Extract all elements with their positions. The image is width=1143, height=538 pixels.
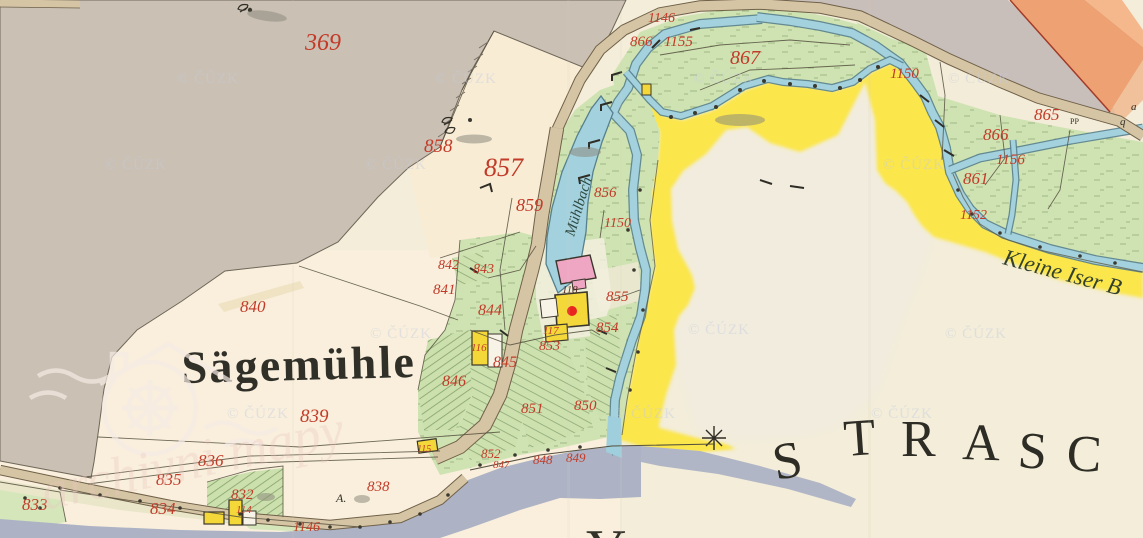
svg-text:q: q [1120,116,1126,128]
svg-text:843: 843 [473,262,494,277]
svg-text:867: 867 [730,47,761,69]
svg-text:834: 834 [150,499,176,518]
svg-text:© ČÚZK: © ČÚZK [883,156,945,173]
svg-text:118: 118 [562,284,578,296]
svg-text:847: 847 [493,459,510,471]
svg-text:C: C [1065,425,1103,484]
svg-text:846: 846 [442,373,466,390]
svg-text:1150: 1150 [604,216,631,231]
svg-text:a: a [1131,101,1137,113]
svg-text:866: 866 [630,34,653,50]
svg-text:865: 865 [1034,105,1060,124]
svg-text:Sägemühle: Sägemühle [181,336,417,393]
svg-text:© ČÚZK: © ČÚZK [365,156,427,173]
svg-text:832: 832 [231,487,254,503]
svg-text:A: A [962,414,1002,472]
svg-text:© ČÚZK: © ČÚZK [693,70,755,87]
svg-text:© ČÚZK: © ČÚZK [435,70,497,87]
svg-text:1146: 1146 [648,11,675,26]
svg-text:115: 115 [417,444,431,455]
svg-text:© ČÚZK: © ČÚZK [945,325,1007,342]
svg-text:© ČÚZK: © ČÚZK [614,405,676,422]
svg-text:861: 861 [963,169,989,188]
svg-text:858: 858 [424,136,453,157]
svg-text:856: 856 [594,185,617,201]
svg-text:PP: PP [1070,117,1079,126]
svg-text:© ČÚZK: © ČÚZK [688,321,750,338]
svg-text:© ČÚZK: © ČÚZK [948,70,1010,87]
svg-text:840: 840 [240,297,266,316]
svg-text:A.: A. [335,491,346,505]
svg-text:S: S [1016,422,1049,481]
svg-text:© ČÚZK: © ČÚZK [177,70,239,87]
svg-text:859: 859 [516,195,543,215]
svg-text:369: 369 [304,30,341,56]
svg-text:© ČÚZK: © ČÚZK [871,405,933,422]
svg-text:841: 841 [433,282,456,298]
svg-text:857: 857 [484,153,524,182]
svg-text:© ČÚZK: © ČÚZK [227,405,289,422]
svg-text:116: 116 [471,342,487,354]
svg-text:848: 848 [533,452,553,467]
svg-text:1155: 1155 [664,34,693,50]
svg-text:117: 117 [543,325,559,337]
svg-text:1150: 1150 [890,66,919,82]
svg-text:838: 838 [367,479,390,495]
svg-text:1146: 1146 [293,520,320,535]
svg-text:851: 851 [521,401,544,417]
svg-text:1156: 1156 [996,152,1025,168]
svg-text:114: 114 [236,504,252,516]
svg-text:853: 853 [539,339,560,354]
svg-text:© ČÚZK: © ČÚZK [105,156,167,173]
svg-text:855: 855 [606,289,629,305]
svg-text:850: 850 [574,398,597,414]
svg-text:866: 866 [983,125,1009,144]
svg-text:854: 854 [596,320,619,336]
svg-text:© ČÚZK: © ČÚZK [370,325,432,342]
svg-text:1152: 1152 [960,208,987,223]
svg-text:844: 844 [478,302,502,319]
svg-text:842: 842 [438,258,459,273]
svg-text:845: 845 [493,354,517,371]
